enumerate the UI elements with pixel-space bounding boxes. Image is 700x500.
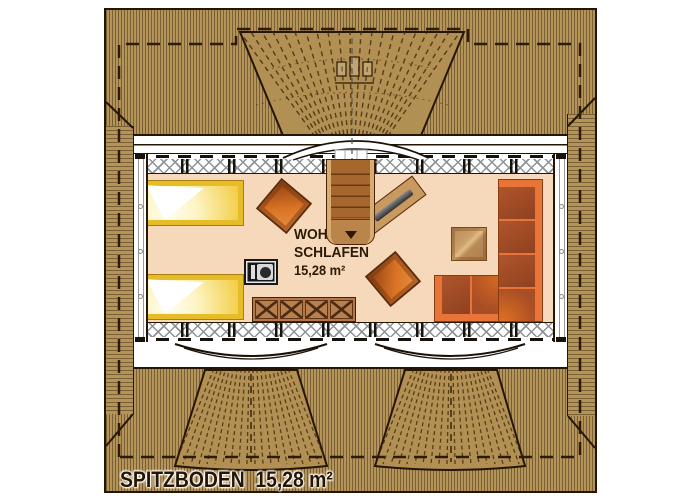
staircase	[327, 160, 374, 244]
stair-direction-arrow	[345, 231, 357, 239]
detail-overlay-svg	[106, 10, 595, 491]
floor-label: SPITZBODEN15,28 m²	[120, 467, 333, 493]
floor-plan-page: WOHNEN / SCHLAFEN 15,28 m²	[0, 0, 700, 500]
plan-canvas: WOHNEN / SCHLAFEN 15,28 m²	[104, 8, 597, 493]
floor-area: 15,28 m²	[255, 467, 332, 492]
floor-name: SPITZBODEN	[120, 467, 245, 492]
eyebrow-arcs-bottom	[175, 344, 525, 359]
